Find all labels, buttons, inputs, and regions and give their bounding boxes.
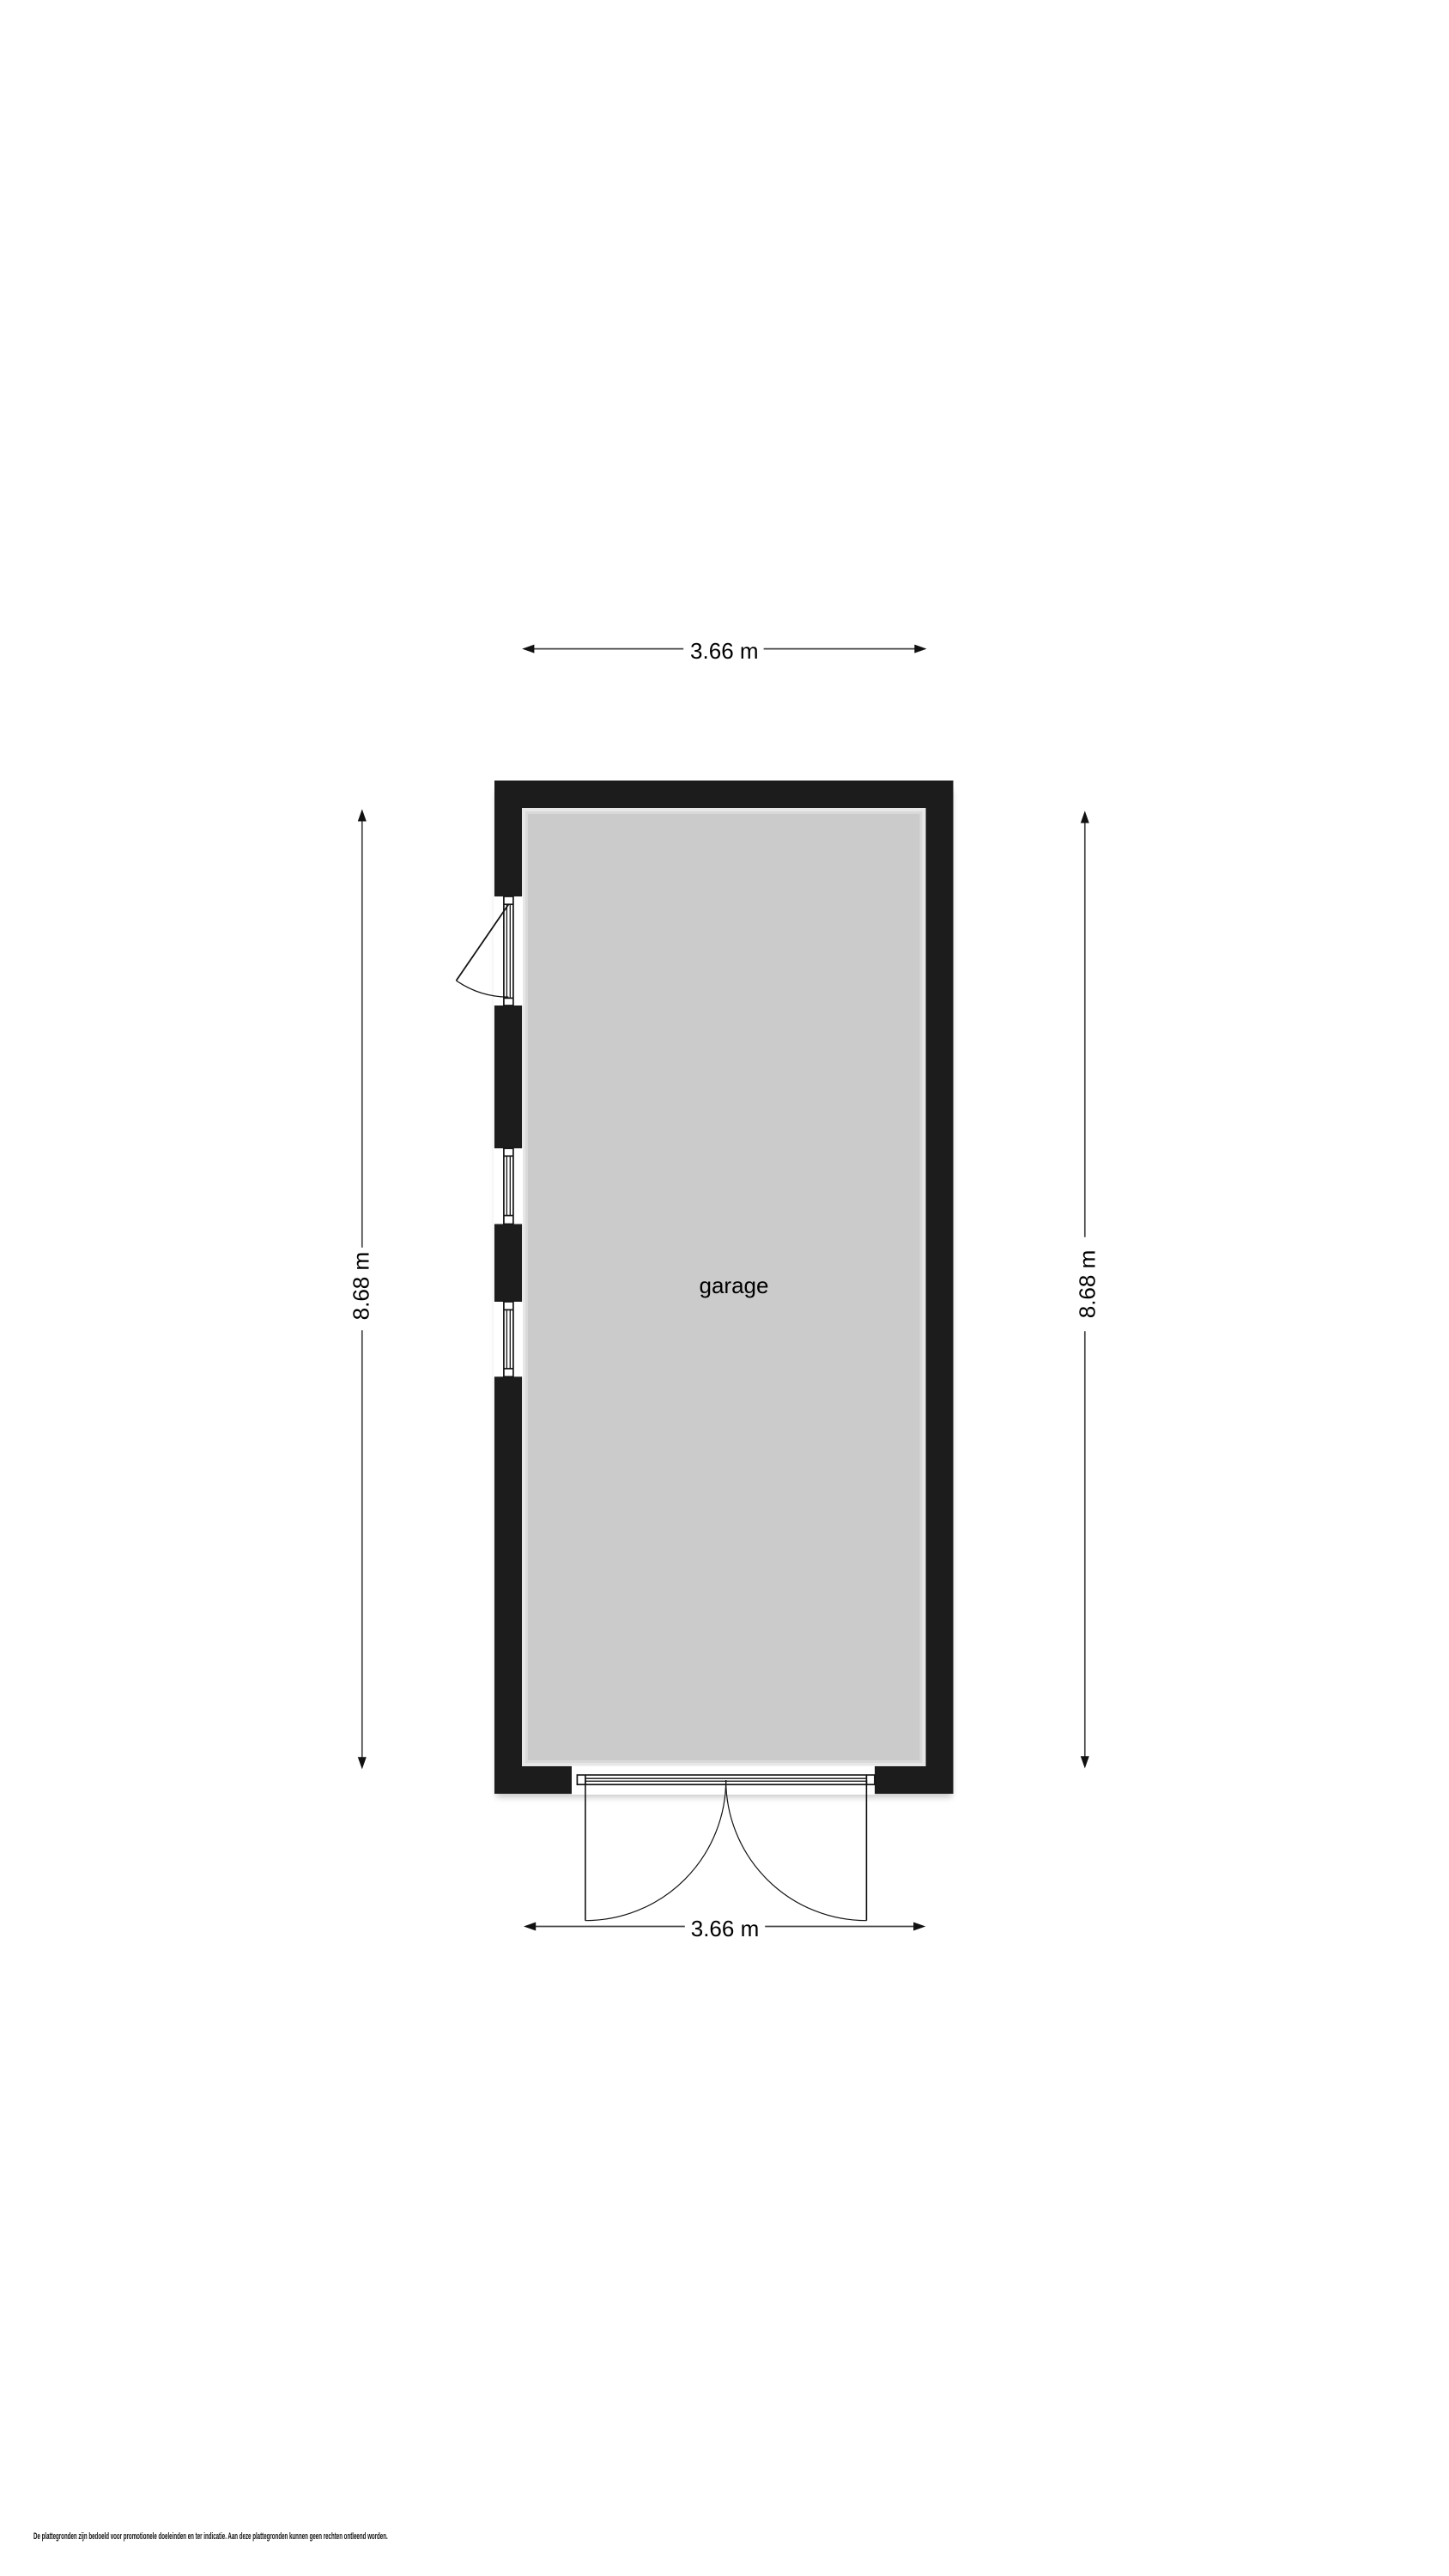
svg-text:8.68 m: 8.68 m — [1074, 1250, 1100, 1319]
svg-text:3.66 m: 3.66 m — [691, 1916, 760, 1941]
svg-text:8.68 m: 8.68 m — [349, 1252, 374, 1321]
svg-text:garage: garage — [700, 1273, 769, 1298]
svg-text:3.66 m: 3.66 m — [690, 638, 759, 664]
svg-text:De plattegronden zijn bedoeld: De plattegronden zijn bedoeld voor promo… — [33, 2530, 388, 2541]
